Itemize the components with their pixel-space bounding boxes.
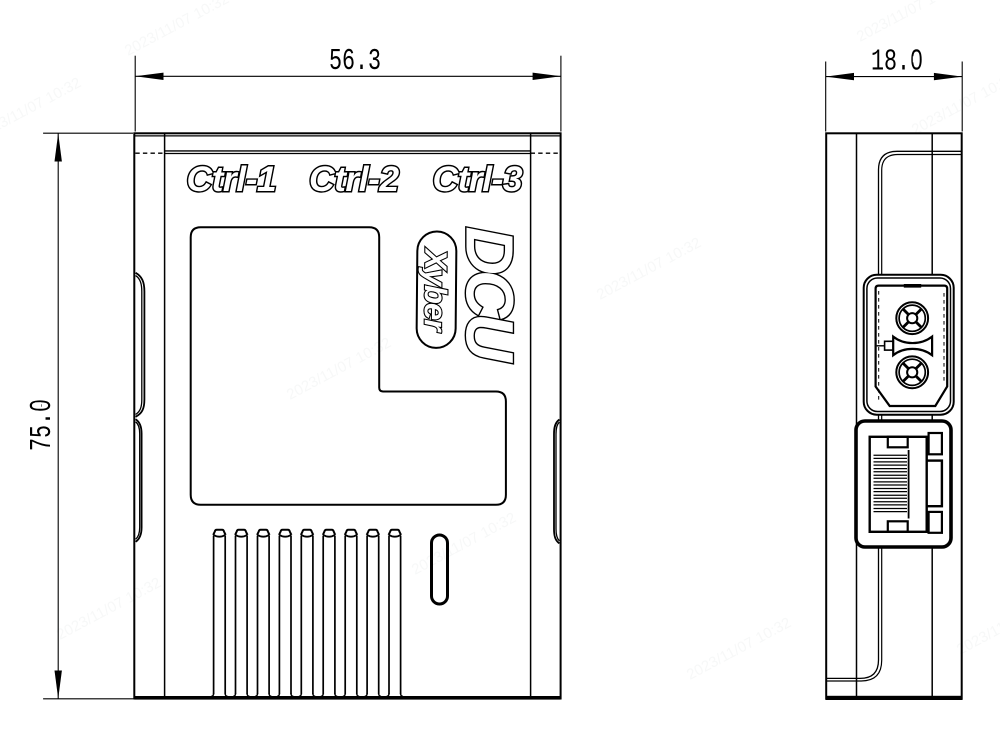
svg-text:Ctrl-1: Ctrl-1 [186,159,276,199]
svg-text:75.0: 75.0 [26,399,61,451]
svg-text:56.3: 56.3 [329,45,381,80]
svg-text:Ctrl-2: Ctrl-2 [309,159,399,199]
svg-text:Xyber: Xyber [418,247,454,333]
svg-text:18.0: 18.0 [871,45,923,80]
svg-text:Ctrl-3: Ctrl-3 [432,159,522,199]
svg-text:DCU: DCU [452,227,527,364]
